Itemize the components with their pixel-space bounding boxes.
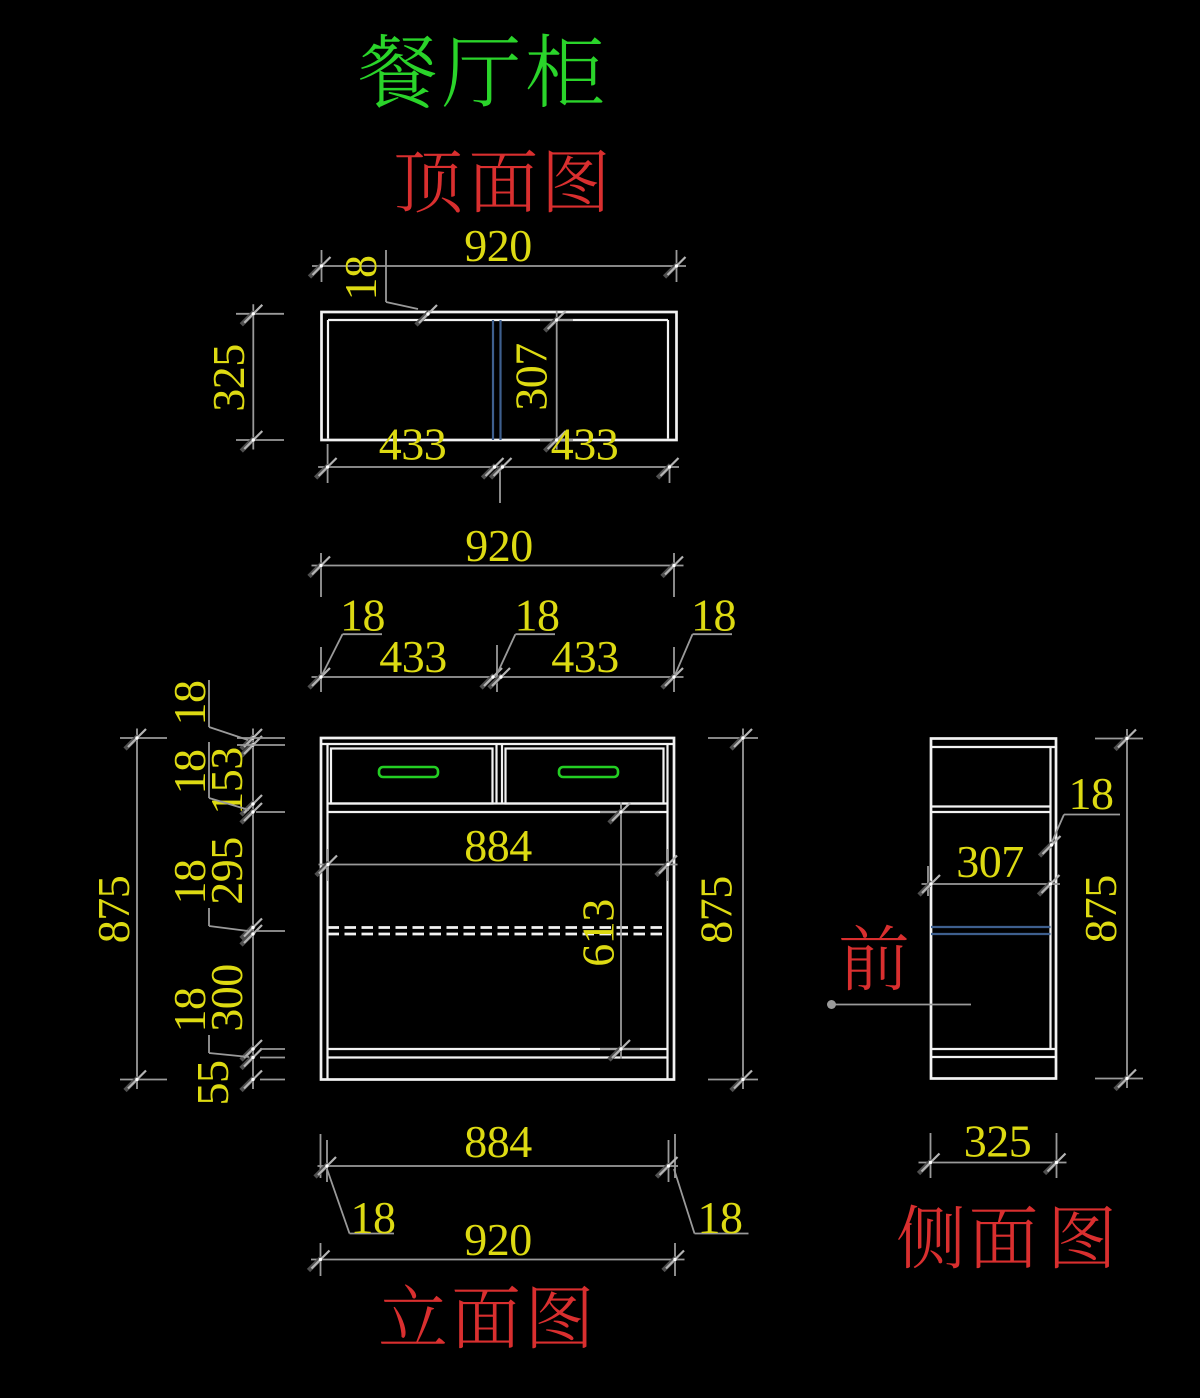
svg-text:325: 325 (203, 344, 254, 412)
svg-text:433: 433 (379, 631, 447, 682)
svg-text:433: 433 (379, 419, 447, 470)
svg-text:18: 18 (691, 590, 736, 641)
svg-text:18: 18 (351, 1192, 396, 1243)
svg-text:55: 55 (187, 1061, 238, 1106)
svg-text:18: 18 (335, 256, 386, 301)
svg-text:18: 18 (340, 590, 385, 641)
svg-text:433: 433 (551, 631, 619, 682)
svg-text:307: 307 (956, 836, 1024, 887)
svg-text:433: 433 (551, 419, 619, 470)
svg-text:18: 18 (164, 681, 215, 726)
svg-text:18: 18 (515, 590, 560, 641)
svg-text:18: 18 (164, 860, 215, 905)
svg-text:884: 884 (464, 820, 532, 871)
svg-text:875: 875 (691, 876, 742, 944)
svg-text:875: 875 (1075, 875, 1126, 943)
svg-text:884: 884 (464, 1116, 532, 1167)
svg-text:875: 875 (88, 876, 139, 944)
svg-text:18: 18 (1069, 768, 1114, 819)
svg-text:920: 920 (465, 520, 533, 571)
svg-text:307: 307 (506, 343, 557, 411)
svg-text:920: 920 (464, 220, 532, 271)
svg-text:613: 613 (573, 899, 624, 967)
svg-text:920: 920 (464, 1214, 532, 1265)
svg-text:18: 18 (698, 1192, 743, 1243)
svg-text:18: 18 (164, 988, 215, 1033)
svg-text:325: 325 (964, 1116, 1032, 1167)
